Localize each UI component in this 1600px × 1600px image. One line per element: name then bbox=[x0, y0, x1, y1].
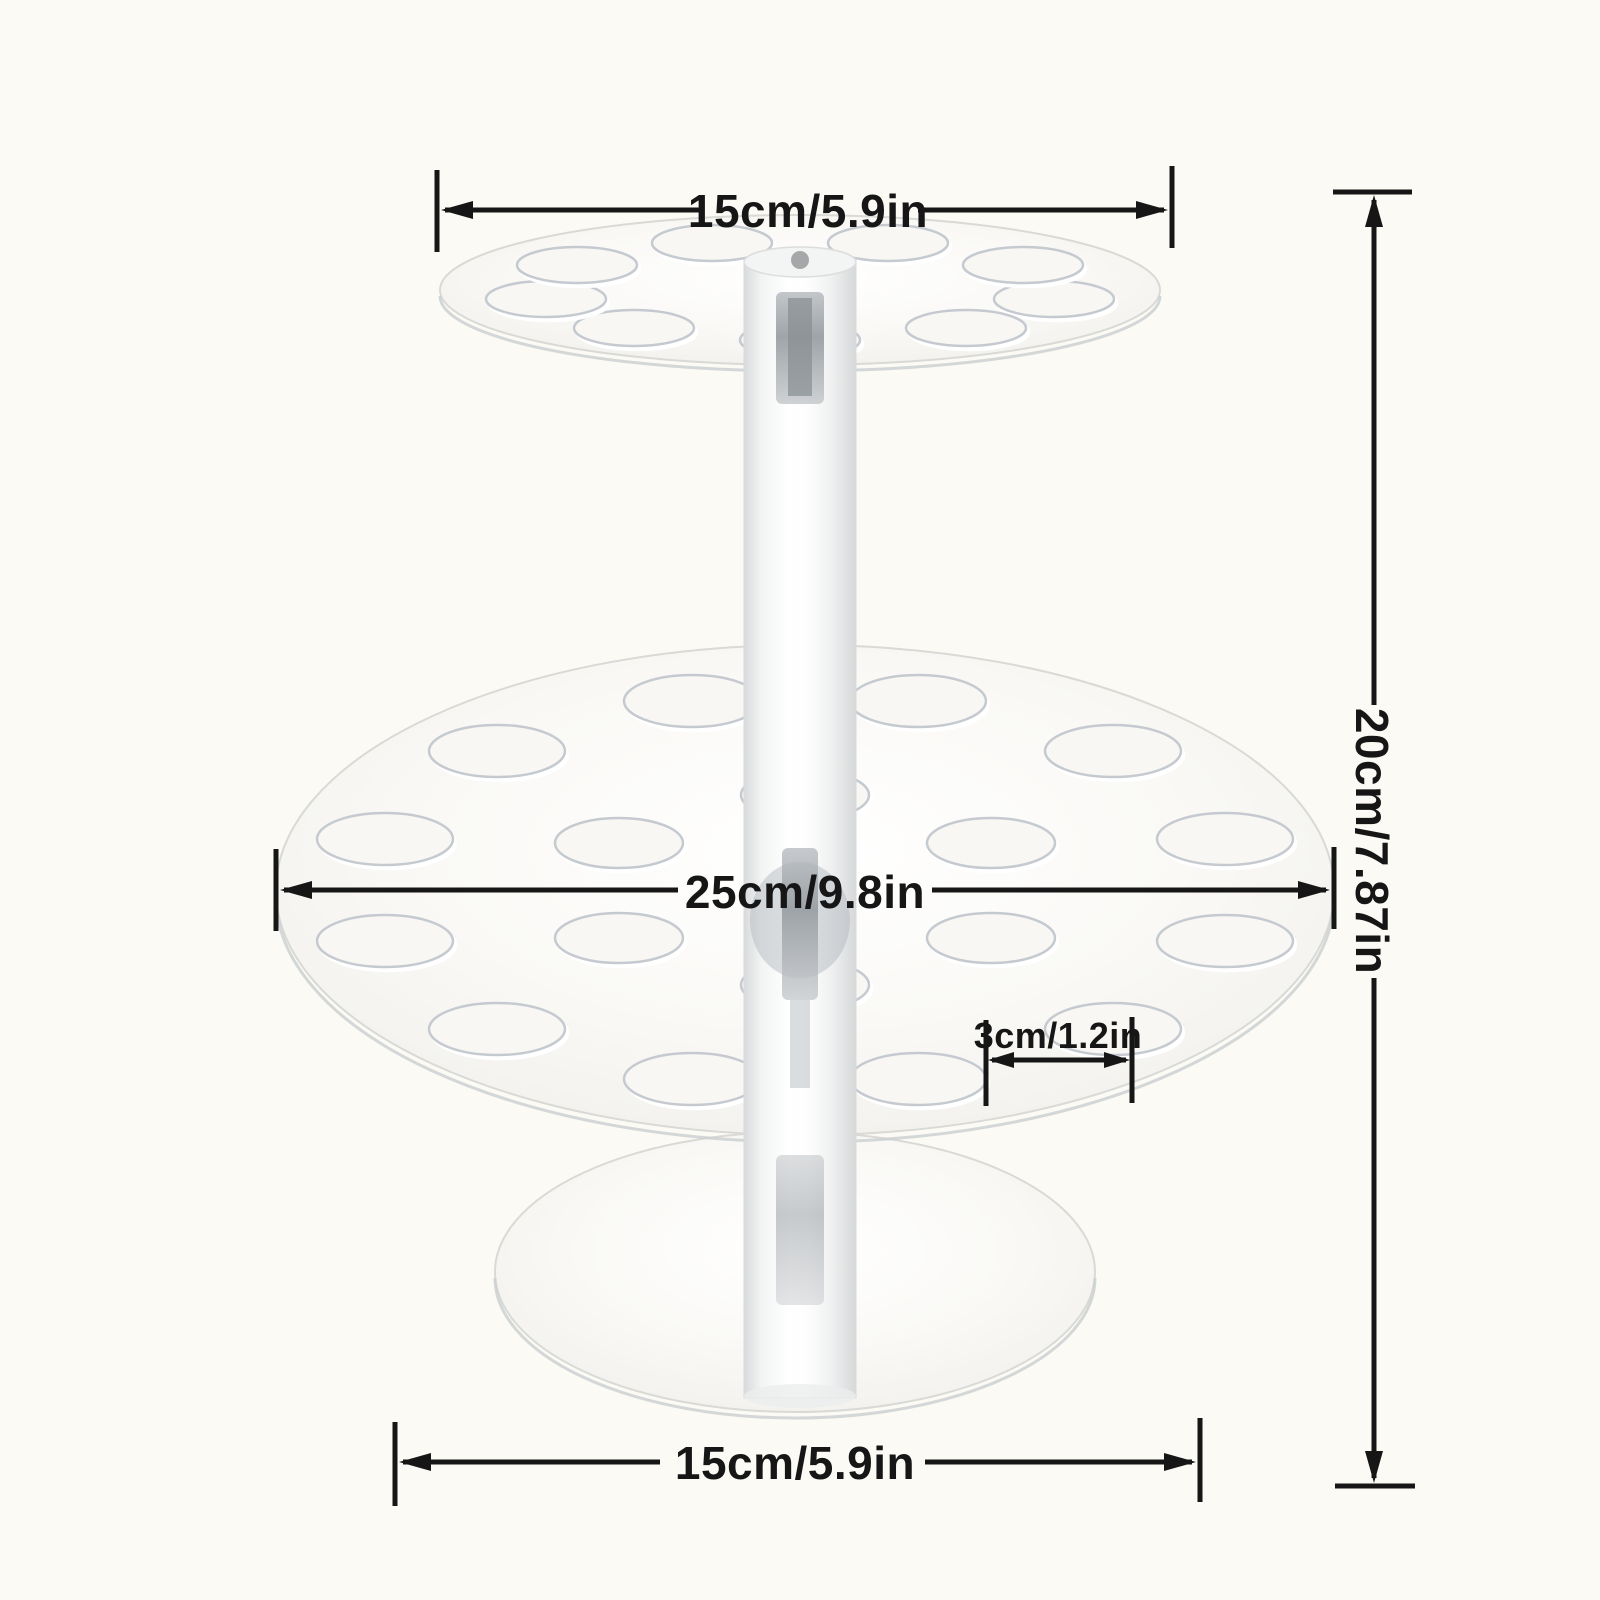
pole-middle-connector-tail bbox=[790, 1000, 810, 1088]
cone-stand-dimension-diagram: 15cm/5.9in 25cm/9.8in 3cm/1.2in 20cm/7.8… bbox=[0, 0, 1600, 1600]
pole-upper-connector-core bbox=[788, 298, 812, 396]
cone-hole bbox=[850, 1053, 986, 1105]
cone-hole bbox=[1157, 813, 1293, 865]
pole-bottom-cap bbox=[744, 1384, 856, 1408]
top-diameter-label: 15cm/5.9in bbox=[688, 185, 928, 237]
cone-hole bbox=[994, 281, 1114, 317]
total-height-label: 20cm/7.87in bbox=[1346, 708, 1398, 974]
cone-hole bbox=[317, 813, 453, 865]
pole-lower-connector bbox=[776, 1155, 824, 1305]
cone-hole bbox=[927, 913, 1055, 963]
cone-hole bbox=[1045, 725, 1181, 777]
cone-hole bbox=[1157, 915, 1293, 967]
cone-hole bbox=[927, 818, 1055, 868]
cone-hole bbox=[906, 310, 1026, 346]
cone-hole bbox=[429, 725, 565, 777]
cone-hole bbox=[963, 247, 1083, 283]
cone-hole bbox=[486, 281, 606, 317]
middle-diameter-label: 25cm/9.8in bbox=[685, 866, 925, 918]
cone-hole bbox=[317, 915, 453, 967]
cone-hole bbox=[850, 675, 986, 727]
cone-hole bbox=[624, 1053, 760, 1105]
base-diameter-label: 15cm/5.9in bbox=[675, 1437, 915, 1489]
pole-top-screw bbox=[791, 251, 809, 269]
cone-hole bbox=[624, 675, 760, 727]
cone-hole bbox=[555, 913, 683, 963]
hole-diameter-label: 3cm/1.2in bbox=[974, 1015, 1143, 1056]
cone-hole bbox=[574, 310, 694, 346]
cone-hole bbox=[429, 1003, 565, 1055]
center-pole bbox=[744, 247, 856, 1408]
cone-hole bbox=[517, 247, 637, 283]
cone-hole bbox=[555, 818, 683, 868]
